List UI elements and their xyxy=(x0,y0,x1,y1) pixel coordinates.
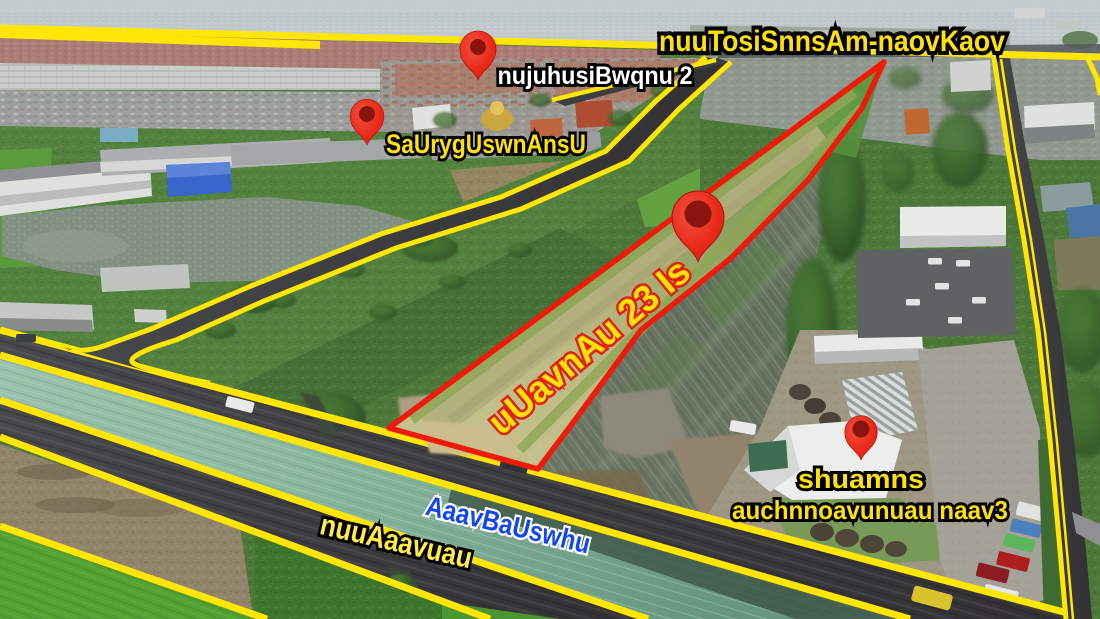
svg-text:shuamns: shuamns xyxy=(798,464,924,494)
svg-text:SaUrygUswnAnsU: SaUrygUswnAnsU xyxy=(386,129,586,159)
svg-text:auchnnoavunuau naav3: auchnnoavunuau naav3 xyxy=(732,495,1008,525)
svg-text:nuuTosiSnnsAm-naovKaov: nuuTosiSnnsAm-naovKaov xyxy=(659,25,1005,58)
svg-text:nujuhusiBwqnu 2: nujuhusiBwqnu 2 xyxy=(498,62,693,90)
